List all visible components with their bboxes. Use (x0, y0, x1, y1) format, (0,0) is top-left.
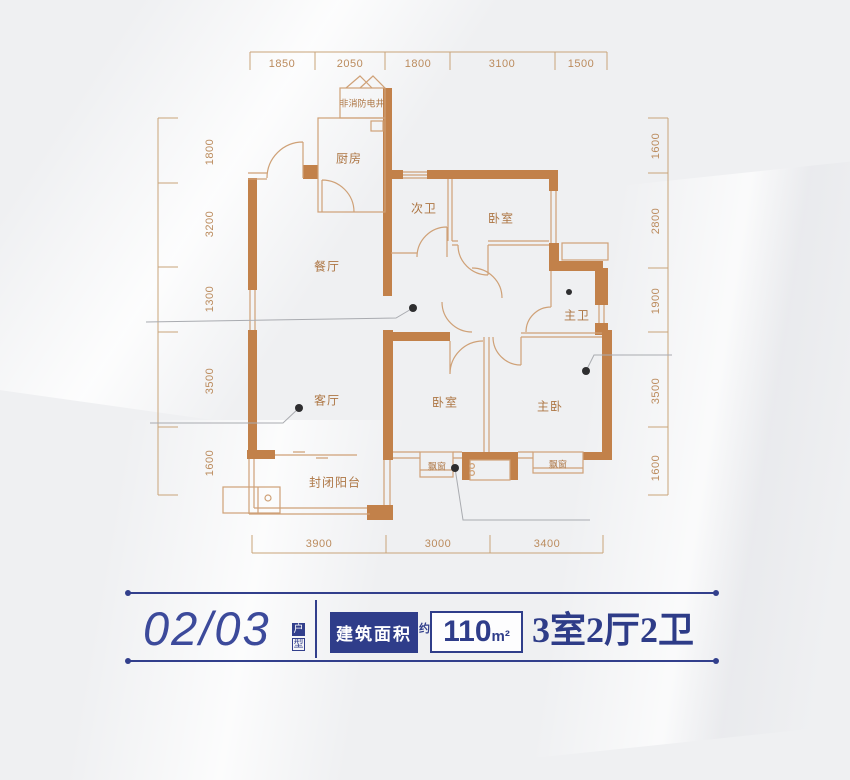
annotation-leaders (146, 289, 672, 520)
annotation-dot (409, 304, 417, 312)
annotation-dot (566, 289, 572, 295)
annotation-dot (295, 404, 303, 412)
dimension-rulers (158, 52, 668, 553)
floorplan-stage: 1850205018003100150018003200130035001600… (0, 0, 850, 695)
annotation-dot (582, 367, 590, 375)
annotation-dot (451, 464, 459, 472)
partitions-and-windows (223, 76, 608, 514)
floorplan-drawing (0, 0, 850, 695)
